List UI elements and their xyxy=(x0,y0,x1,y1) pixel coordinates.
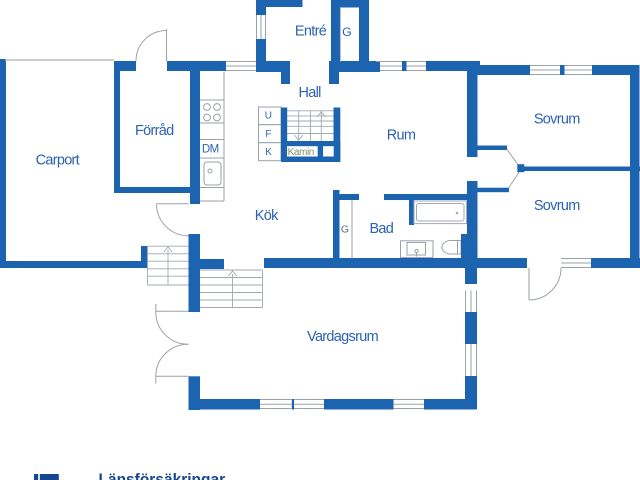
svg-text:Vardagsrum: Vardagsrum xyxy=(307,329,379,345)
svg-text:K: K xyxy=(265,147,272,158)
svg-text:Entré: Entré xyxy=(295,23,327,39)
svg-text:Carport: Carport xyxy=(36,153,80,169)
svg-text:Bad: Bad xyxy=(369,221,393,237)
svg-text:Kamin: Kamin xyxy=(288,147,314,158)
svg-text:Sovrum: Sovrum xyxy=(534,198,580,214)
svg-text:Hall: Hall xyxy=(299,85,322,101)
svg-text:G: G xyxy=(341,225,349,236)
svg-text:Rum: Rum xyxy=(387,128,416,144)
svg-text:Kök: Kök xyxy=(255,208,279,224)
svg-text:DM: DM xyxy=(202,144,219,156)
svg-text:Förråd: Förråd xyxy=(135,123,174,139)
svg-text:U: U xyxy=(265,111,272,122)
svg-text:F: F xyxy=(265,129,271,140)
svg-text:Länsförsäkringar: Länsförsäkringar xyxy=(99,471,226,480)
svg-text:G: G xyxy=(342,25,352,39)
svg-text:Sovrum: Sovrum xyxy=(534,112,580,128)
